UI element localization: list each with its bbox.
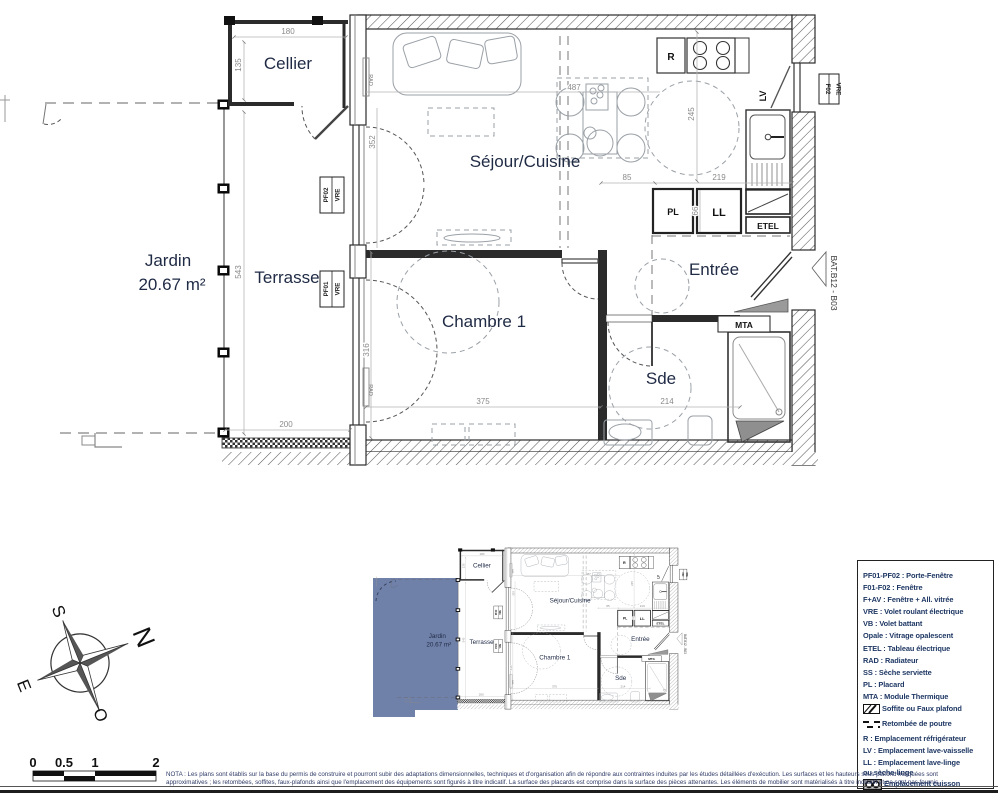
dim-316: 316 — [362, 343, 371, 357]
room-jardin: Jardin — [145, 251, 191, 270]
nota-text: NOTA : Les plans sont établis sur la bas… — [166, 771, 994, 787]
svg-text:VRE: VRE — [335, 189, 342, 202]
frame-line-thick — [0, 790, 998, 793]
scale-2: 2 — [152, 755, 159, 770]
coffee-table — [428, 108, 494, 136]
legend-item: VRE : Volet roulant électrique — [863, 606, 989, 618]
dim-375: 375 — [476, 397, 490, 406]
legend-item-soffite: Soffite ou Faux plafond — [863, 703, 989, 718]
svg-text:PF01: PF01 — [323, 281, 330, 296]
equipment-labels: R LV PL LL ETEL MTA — [667, 52, 779, 330]
legend-item: R : Emplacement réfrigérateur — [863, 733, 989, 745]
overview-plan — [373, 548, 687, 717]
legend-item: PF01-PF02 : Porte-Fenêtre — [863, 570, 989, 582]
interior-walls — [366, 36, 790, 440]
dim-487: 487 — [567, 83, 581, 92]
person-figure — [587, 130, 613, 156]
scale-1: 1 — [91, 755, 98, 770]
plan-drawing: 180 135 543 352 487 245 85 219 66 316 37… — [0, 0, 998, 800]
frame-line-thin — [0, 786, 998, 787]
svg-text:F02: F02 — [824, 84, 831, 95]
legend-item: VB : Volet battant — [863, 618, 989, 630]
legend-item: PL : Placard — [863, 679, 989, 691]
entrance-door — [734, 252, 826, 312]
legend-item: F01-F02 : Fenêtre — [863, 582, 989, 594]
legend-item: ETEL : Tableau électrique — [863, 643, 989, 655]
placard-label: PL — [667, 207, 679, 217]
legend-item: LV : Emplacement lave-vaisselle — [863, 745, 989, 757]
legend-item: SS : Sèche serviette — [863, 667, 989, 679]
legend-item-retombee: Retombée de poutre — [863, 718, 989, 733]
mta-label: MTA — [735, 320, 753, 330]
svg-text:VRE: VRE — [335, 283, 342, 296]
legend-box: PF01-PF02 : Porte-Fenêtre F01-F02 : Fenê… — [857, 560, 994, 789]
scale-0: 0 — [29, 755, 36, 770]
legend-item: MTA : Module Thermique — [863, 691, 989, 703]
svg-text:VRE: VRE — [835, 83, 842, 96]
floor-plan-sheet: 180 135 543 352 487 245 85 219 66 316 37… — [0, 0, 998, 800]
room-sejour-cuisine: Séjour/Cuisine — [470, 152, 581, 171]
legend-item: RAD : Radiateur — [863, 655, 989, 667]
fridge-label: R — [667, 52, 675, 63]
sink — [746, 110, 790, 190]
legend-item: Opale : Vitrage opalescent — [863, 630, 989, 642]
south-label: S — [48, 602, 70, 620]
bat-label: BAT.B12 - B03 — [829, 255, 839, 310]
f02-window — [771, 63, 800, 112]
plant — [586, 84, 608, 110]
cooktop-icon — [694, 42, 730, 70]
room-cellier: Cellier — [264, 54, 313, 73]
main-floor-plan: 180 135 543 352 487 245 85 219 66 316 37… — [0, 15, 842, 465]
dim-214: 214 — [660, 397, 674, 406]
beam-icon — [863, 719, 880, 733]
jardin-area: 20.67 m² — [138, 275, 205, 294]
fence — [218, 100, 229, 438]
dishwasher-label: LV — [758, 91, 768, 102]
east-label: E — [13, 677, 35, 695]
jardin-boundary — [0, 95, 222, 447]
dim-219: 219 — [712, 173, 726, 182]
room-chambre1: Chambre 1 — [442, 312, 526, 331]
dim-352: 352 — [368, 135, 377, 149]
rad-label: RAD — [367, 384, 373, 396]
room-terrasse: Terrasse — [254, 268, 319, 287]
window-tags: PF02 VRE PF01 VRE F02 VRE BAT.B12 - B03 … — [320, 74, 842, 396]
scale-bar: 0 0.5 1 2 — [29, 755, 159, 781]
dim-135: 135 — [234, 58, 243, 72]
kitchen — [653, 38, 790, 233]
sofa — [393, 33, 521, 95]
room-sde: Sde — [646, 369, 676, 388]
sde-fixtures — [604, 316, 790, 445]
washer-label: LL — [712, 207, 726, 219]
west-label: O — [89, 705, 112, 724]
dim-85: 85 — [623, 173, 632, 182]
north-label: N — [127, 623, 162, 652]
chambre-furniture — [432, 230, 515, 445]
dim-180: 180 — [281, 27, 295, 36]
compass-rose: N E S O — [0, 574, 181, 747]
pf01-tag: PF01 VRE — [320, 271, 344, 307]
scale-05: 0.5 — [55, 755, 73, 770]
dim-200: 200 — [279, 420, 293, 429]
svg-text:PF02: PF02 — [323, 187, 330, 202]
nota-line1: NOTA : Les plans sont établis sur la bas… — [166, 771, 994, 779]
soffite-icon — [863, 704, 880, 718]
pf02-tag: PF02 VRE — [320, 177, 344, 213]
porte-fenetre-pf02 — [353, 125, 424, 245]
soffite-marker — [736, 421, 784, 442]
dim-66: 66 — [691, 206, 700, 215]
room-entree: Entrée — [689, 260, 739, 279]
dim-245: 245 — [687, 107, 696, 121]
dim-543: 543 — [234, 265, 243, 279]
f02-tag: F02 VRE — [819, 74, 842, 104]
rad-label: RAD — [367, 74, 373, 86]
etel-label: ETEL — [757, 221, 779, 231]
legend-item: F+AV : Fenêtre + All. vitrée — [863, 594, 989, 606]
